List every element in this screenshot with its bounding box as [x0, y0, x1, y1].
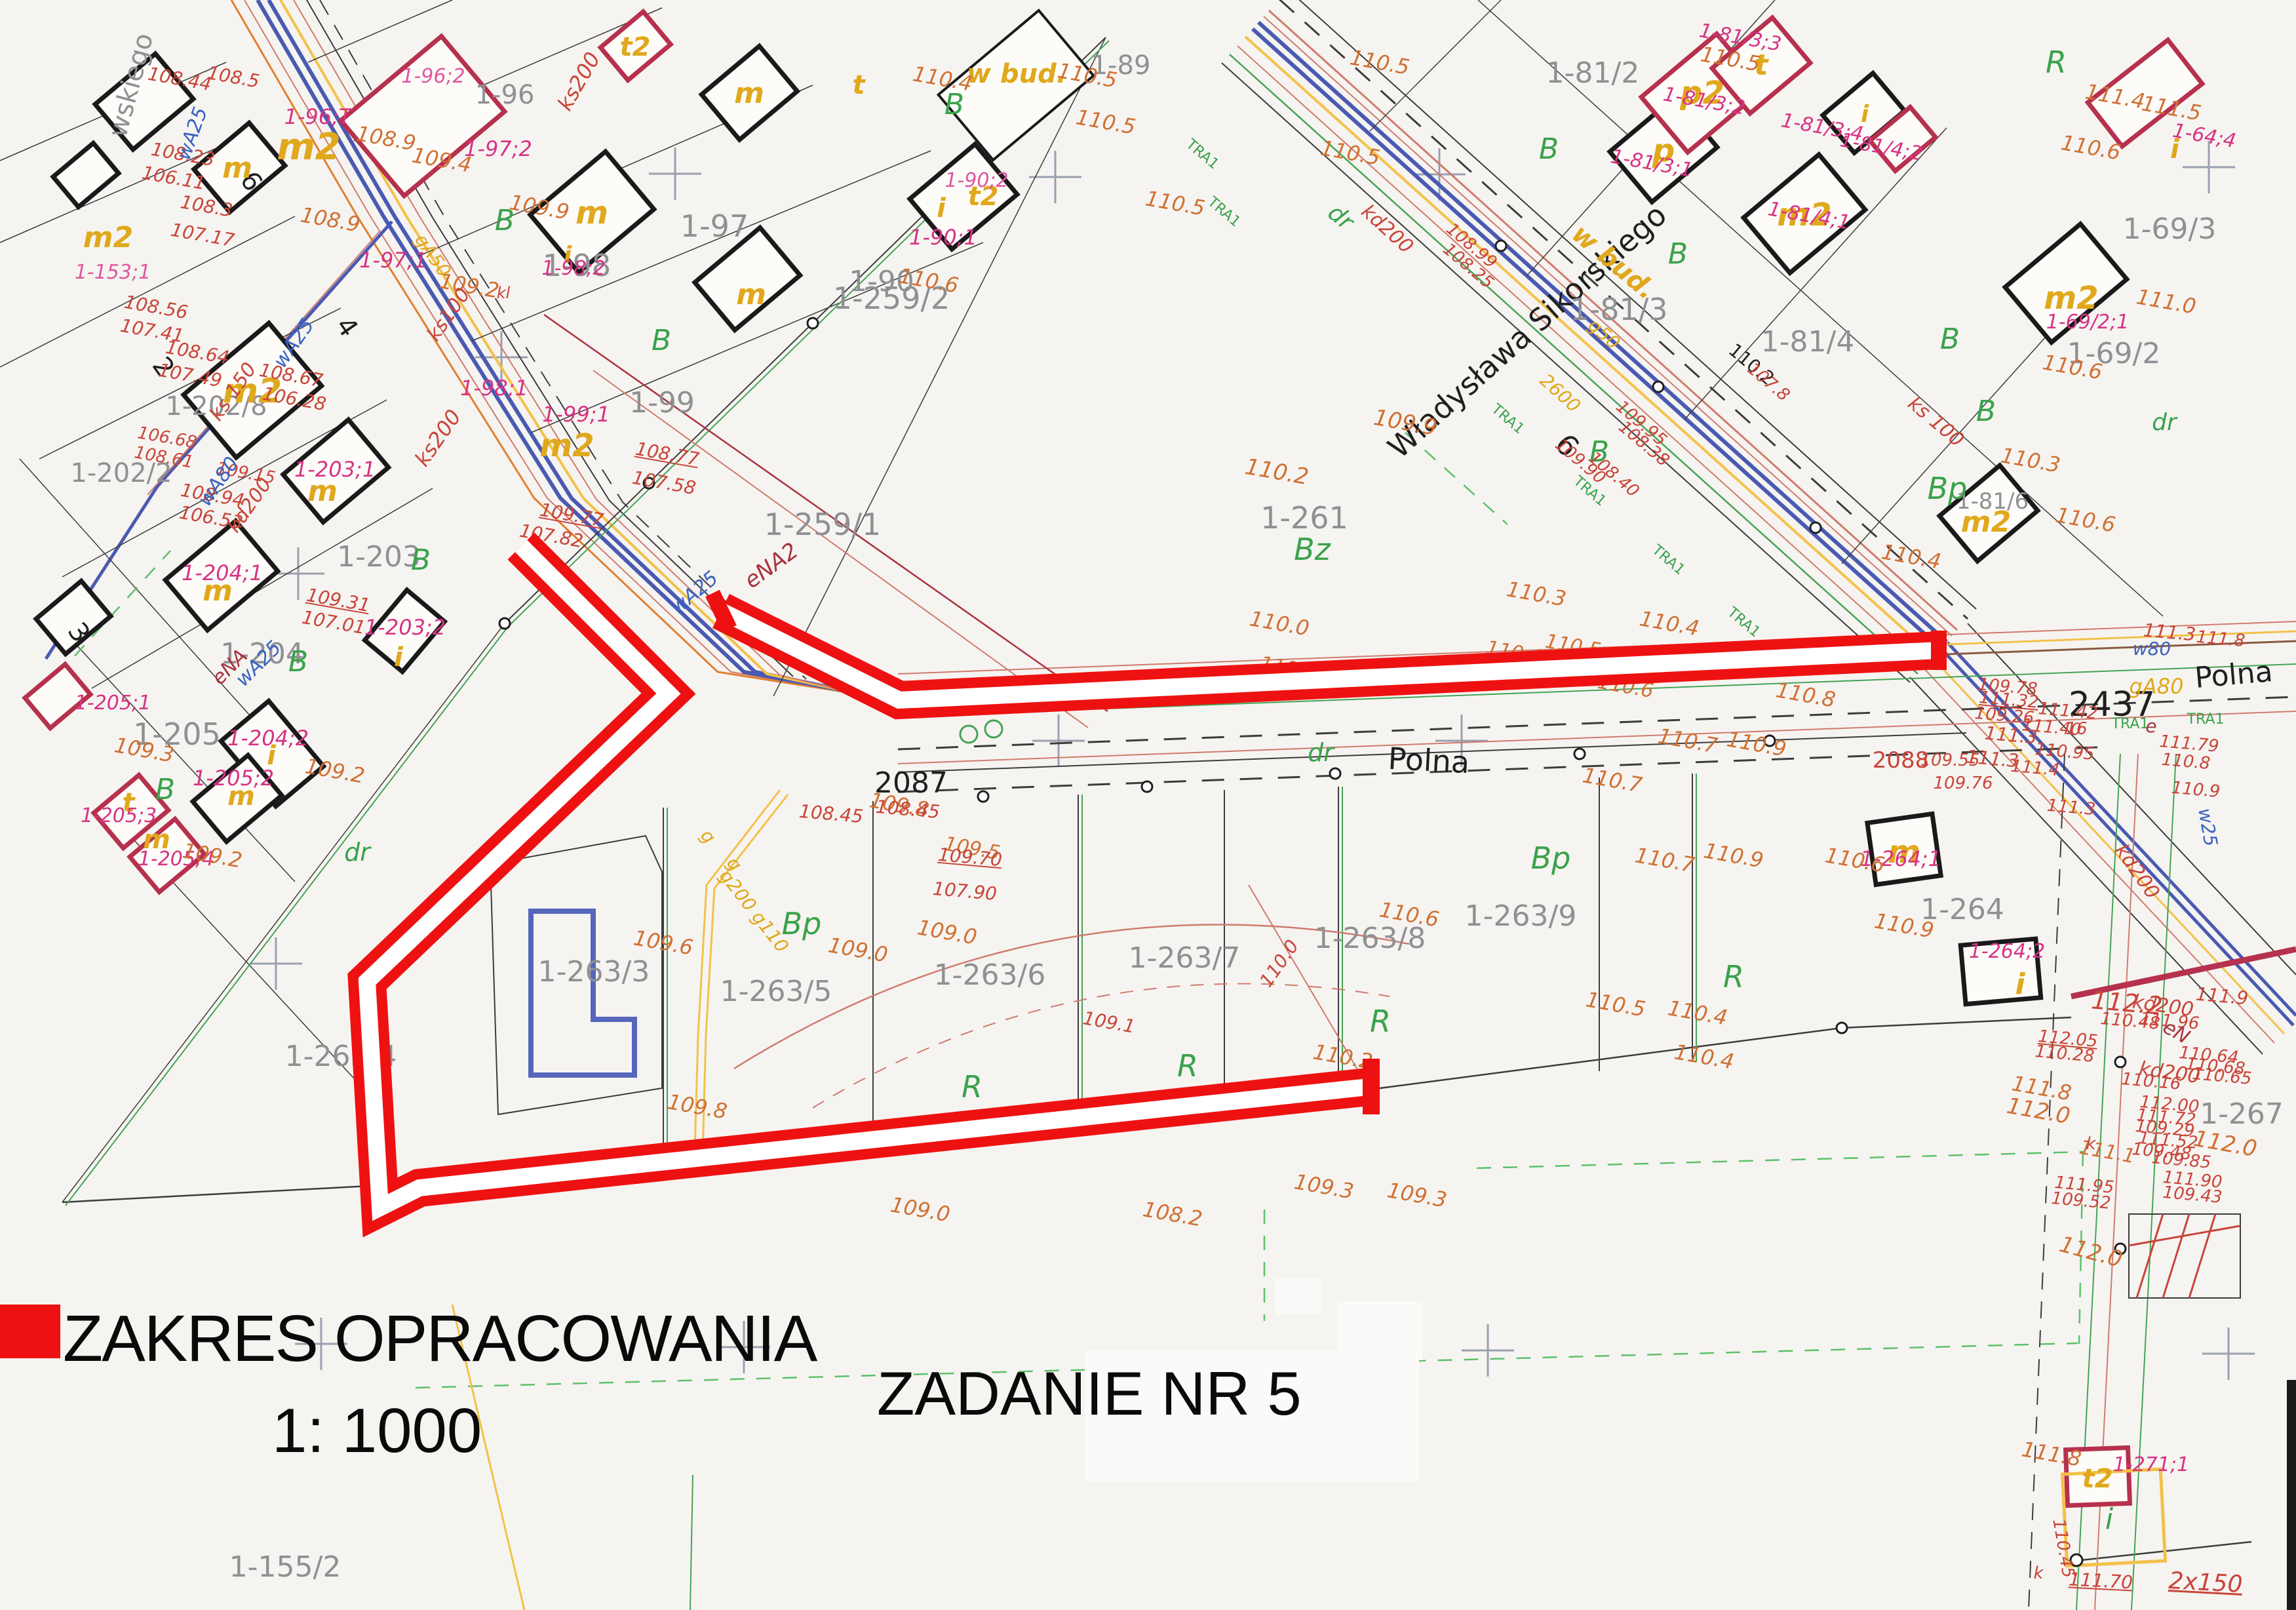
legend-title: ZAKRES OPRACOWANIA [63, 1301, 816, 1377]
legend-color-swatch [0, 1305, 60, 1358]
legend-scale: 1: 1000 [272, 1395, 482, 1467]
legend-task-title: ZADANIE NR 5 [877, 1358, 1302, 1429]
scanner-edge-artifact [2287, 1380, 2296, 1610]
survey-map-page: Władysława SikorskiegoPolnaPolnawskiego2… [0, 0, 2296, 1610]
